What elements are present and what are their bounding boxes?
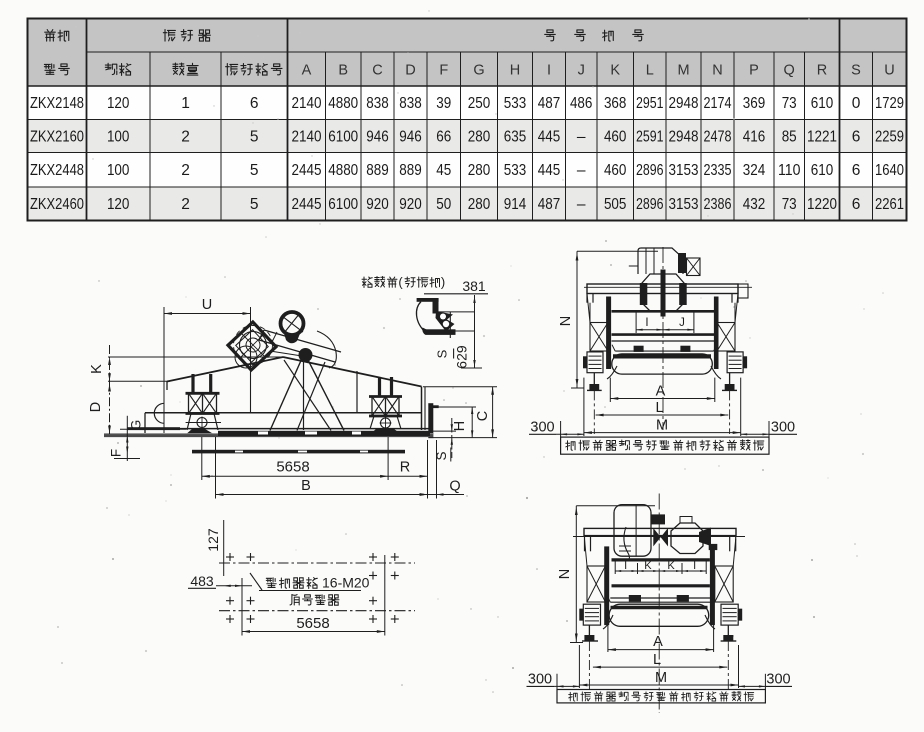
svg-text:2140: 2140: [292, 129, 322, 146]
svg-text:505: 505: [604, 196, 627, 213]
svg-text:–: –: [577, 129, 586, 146]
svg-text:N: N: [712, 63, 722, 79]
svg-text:460: 460: [604, 129, 627, 146]
svg-text:2896: 2896: [636, 162, 664, 179]
svg-text:4880: 4880: [328, 162, 358, 179]
svg-text:533: 533: [504, 95, 527, 112]
svg-text:5658: 5658: [276, 459, 309, 476]
svg-text:Q: Q: [784, 63, 795, 79]
svg-text:280: 280: [468, 196, 491, 213]
svg-text:73: 73: [782, 95, 797, 112]
svg-text:2335: 2335: [704, 162, 732, 179]
svg-text:2951: 2951: [636, 95, 664, 112]
svg-text:2591: 2591: [636, 129, 664, 146]
svg-text:I: I: [693, 560, 696, 572]
svg-text:4880: 4880: [328, 95, 358, 112]
svg-text:946: 946: [399, 129, 422, 146]
svg-text:I: I: [645, 317, 648, 329]
svg-text:610: 610: [811, 95, 834, 112]
svg-text:2445: 2445: [292, 196, 322, 213]
svg-text:A: A: [656, 384, 666, 400]
svg-text:838: 838: [399, 95, 422, 112]
svg-text:I: I: [547, 63, 551, 79]
svg-text:D: D: [405, 63, 415, 79]
svg-text:487: 487: [538, 95, 561, 112]
svg-text:2478: 2478: [704, 129, 732, 146]
svg-text:U: U: [884, 63, 894, 79]
svg-text:914: 914: [504, 196, 527, 213]
svg-text:300: 300: [530, 420, 554, 436]
svg-text:G: G: [129, 420, 144, 431]
svg-text:1221: 1221: [807, 129, 837, 146]
svg-text:R: R: [400, 460, 410, 476]
svg-text:H: H: [510, 63, 520, 79]
svg-text:369: 369: [743, 95, 766, 112]
svg-text:J: J: [679, 317, 685, 329]
svg-text:M: M: [677, 63, 689, 79]
svg-text:K: K: [667, 560, 675, 572]
svg-text:946: 946: [366, 129, 389, 146]
svg-text:889: 889: [366, 162, 389, 179]
svg-text:J: J: [578, 63, 585, 79]
svg-text:3153: 3153: [669, 162, 699, 179]
svg-text:F: F: [439, 63, 448, 79]
svg-text:1640: 1640: [875, 162, 904, 179]
svg-text:432: 432: [743, 196, 766, 213]
svg-text:(: (: [398, 275, 403, 290]
svg-text:300: 300: [766, 672, 790, 688]
svg-text:110: 110: [778, 162, 801, 179]
svg-text:P: P: [749, 63, 759, 79]
svg-text:A: A: [653, 634, 663, 650]
svg-text:381: 381: [462, 278, 486, 294]
svg-text:100: 100: [107, 129, 130, 146]
svg-text:C: C: [475, 411, 491, 421]
svg-text:S: S: [435, 349, 450, 358]
svg-text:5658: 5658: [296, 615, 329, 632]
svg-text:S: S: [851, 63, 861, 79]
svg-text:6: 6: [852, 162, 861, 179]
svg-text:R: R: [817, 63, 827, 79]
svg-text:300: 300: [528, 672, 552, 688]
svg-text:L: L: [655, 400, 663, 416]
svg-text:2: 2: [181, 196, 190, 213]
svg-text:50: 50: [436, 196, 451, 213]
svg-text:6: 6: [852, 196, 861, 213]
svg-text:–: –: [577, 162, 586, 179]
svg-text:2948: 2948: [669, 129, 699, 146]
svg-text:B: B: [301, 478, 311, 494]
svg-text:K: K: [89, 364, 105, 374]
svg-text:1729: 1729: [875, 95, 904, 112]
svg-text:16-M20: 16-M20: [322, 575, 370, 591]
svg-text:460: 460: [604, 162, 627, 179]
svg-text:B: B: [338, 63, 348, 79]
svg-text:73: 73: [782, 196, 797, 213]
svg-text:838: 838: [366, 95, 389, 112]
svg-text:M: M: [656, 418, 668, 434]
svg-text:120: 120: [107, 196, 130, 213]
svg-text:368: 368: [604, 95, 627, 112]
svg-text:L: L: [653, 652, 661, 668]
svg-text:2174: 2174: [704, 95, 732, 112]
svg-text:920: 920: [366, 196, 389, 213]
svg-text:Q: Q: [449, 479, 460, 495]
svg-text:3153: 3153: [669, 196, 699, 213]
svg-text:2386: 2386: [704, 196, 732, 213]
svg-text:889: 889: [399, 162, 422, 179]
svg-text:920: 920: [399, 196, 422, 213]
svg-text:ZKX2160: ZKX2160: [30, 129, 84, 146]
svg-text:D: D: [88, 402, 104, 412]
svg-text:A: A: [302, 63, 312, 79]
svg-text:K: K: [610, 63, 620, 79]
svg-text:2896: 2896: [636, 196, 664, 213]
svg-text:250: 250: [468, 95, 491, 112]
svg-text:533: 533: [504, 162, 527, 179]
svg-text:I: I: [624, 560, 627, 572]
svg-text:324: 324: [743, 162, 766, 179]
svg-text:127: 127: [205, 528, 221, 552]
svg-text:N: N: [557, 569, 573, 579]
svg-text:66: 66: [436, 129, 451, 146]
svg-text:39: 39: [436, 95, 451, 112]
svg-text:N: N: [558, 316, 574, 326]
svg-text:629: 629: [454, 345, 470, 369]
svg-text:6100: 6100: [328, 196, 358, 213]
svg-text:F: F: [109, 449, 124, 457]
svg-text:H: H: [452, 421, 468, 431]
svg-text:445: 445: [538, 129, 561, 146]
svg-text:1220: 1220: [807, 196, 837, 213]
svg-text:K: K: [644, 560, 652, 572]
svg-text:ZKX2148: ZKX2148: [30, 95, 84, 112]
svg-text:–: –: [577, 196, 586, 213]
svg-text:): ): [441, 275, 445, 290]
svg-text:S: S: [434, 451, 449, 460]
svg-text:2140: 2140: [292, 95, 322, 112]
svg-text:2261: 2261: [875, 196, 904, 213]
svg-text:85: 85: [782, 129, 797, 146]
svg-text:5: 5: [250, 162, 259, 179]
svg-text:ZKX2448: ZKX2448: [30, 162, 84, 179]
svg-text:300: 300: [771, 420, 795, 436]
svg-text:ZKX2460: ZKX2460: [30, 196, 84, 213]
svg-text:445: 445: [538, 162, 561, 179]
svg-text:2: 2: [181, 129, 190, 146]
svg-text:120: 120: [107, 95, 130, 112]
svg-text:0: 0: [852, 95, 861, 112]
svg-text:M: M: [655, 670, 667, 686]
svg-text:5: 5: [250, 129, 259, 146]
svg-text:6100: 6100: [328, 129, 358, 146]
svg-text:486: 486: [570, 95, 593, 112]
svg-text:1: 1: [181, 95, 190, 112]
svg-text:L: L: [646, 63, 654, 79]
svg-text:45: 45: [436, 162, 451, 179]
svg-text:U: U: [202, 297, 212, 313]
svg-text:280: 280: [468, 162, 491, 179]
svg-text:635: 635: [504, 129, 527, 146]
svg-text:416: 416: [743, 129, 766, 146]
svg-text:2948: 2948: [669, 95, 699, 112]
svg-text:100: 100: [107, 162, 130, 179]
svg-text:C: C: [372, 63, 382, 79]
svg-text:G: G: [473, 63, 484, 79]
svg-text:487: 487: [538, 196, 561, 213]
svg-text:610: 610: [811, 162, 834, 179]
svg-text:2445: 2445: [292, 162, 322, 179]
svg-text:5: 5: [250, 196, 259, 213]
svg-text:6: 6: [852, 129, 861, 146]
svg-text:2259: 2259: [875, 129, 904, 146]
svg-text:483: 483: [190, 573, 214, 589]
svg-text:6: 6: [250, 95, 259, 112]
svg-text:2: 2: [181, 162, 190, 179]
svg-text:280: 280: [468, 129, 491, 146]
